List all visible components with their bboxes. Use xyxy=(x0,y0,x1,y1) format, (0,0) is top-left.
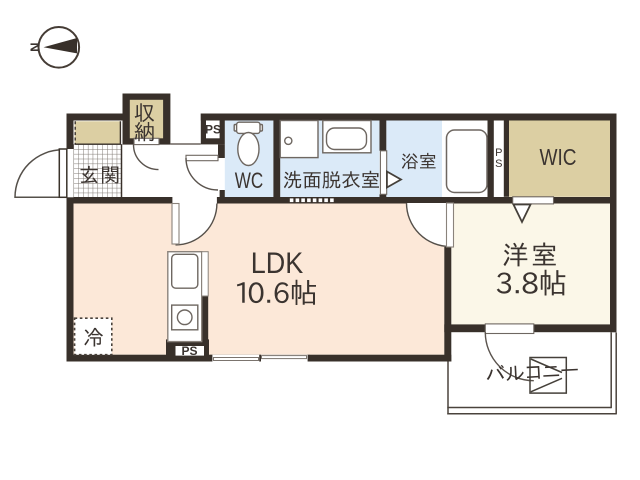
svg-text:WC: WC xyxy=(235,168,264,193)
svg-text:N: N xyxy=(28,43,43,52)
svg-text:LDK: LDK xyxy=(251,247,304,280)
svg-text:S: S xyxy=(495,158,502,170)
svg-text:WIC: WIC xyxy=(540,144,577,170)
svg-text:PS: PS xyxy=(181,344,197,358)
svg-text:PS: PS xyxy=(205,123,221,137)
